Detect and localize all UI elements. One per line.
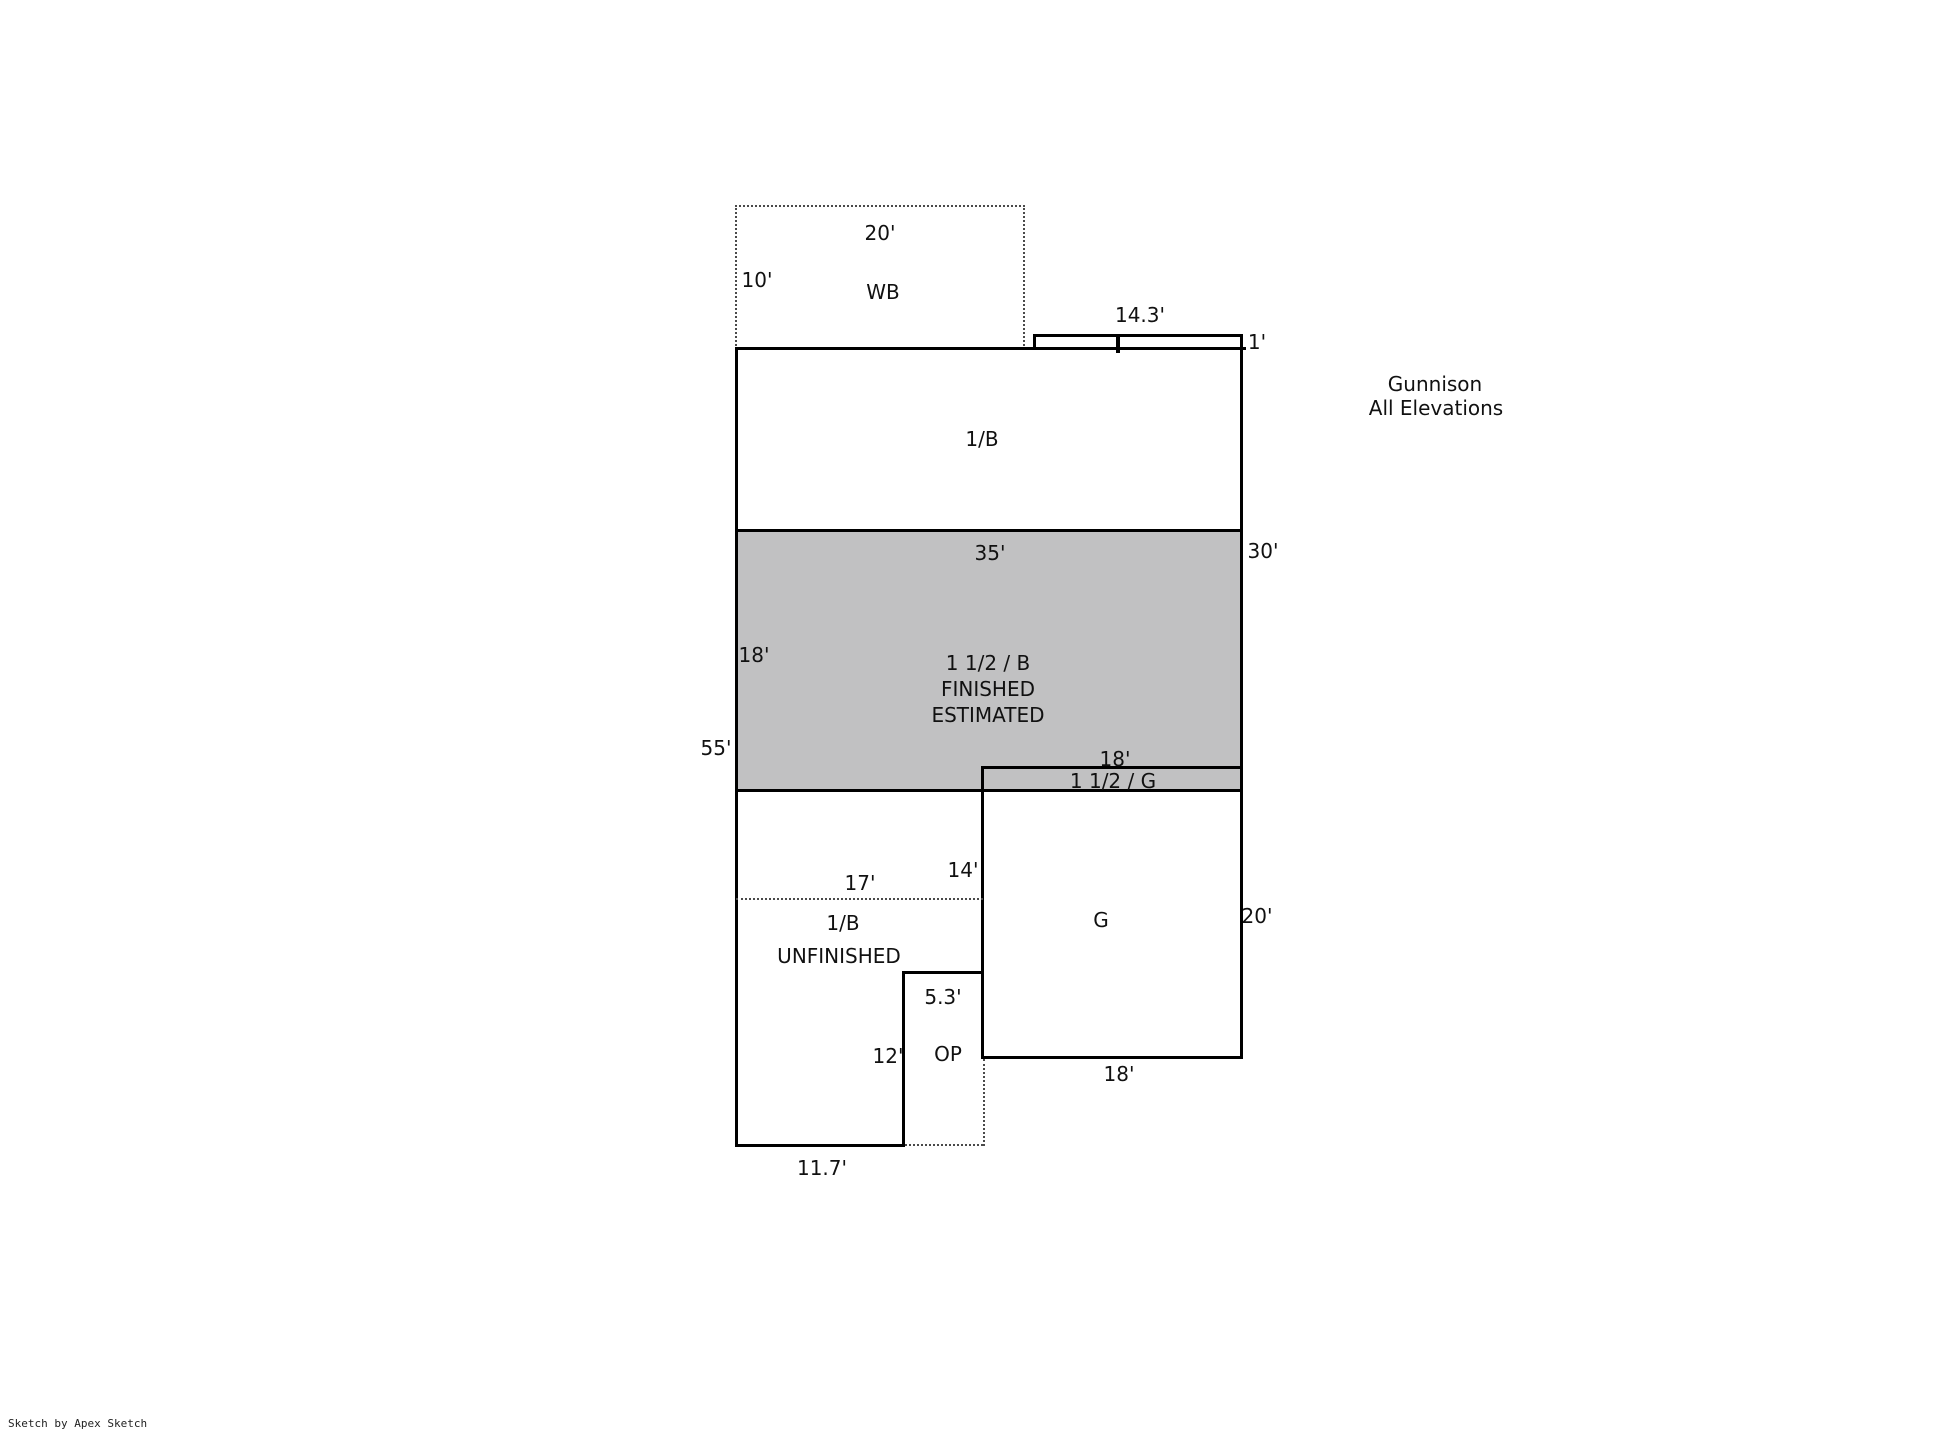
garage-width-dim: 18' [1104,1063,1135,1085]
garage-height-dim: 20' [1242,905,1273,927]
upper-basement-width-dim: 35' [975,542,1006,564]
finished-area-note: ESTIMATED [931,704,1044,726]
bump-width-dim: 14.3' [1115,304,1165,326]
overall-height-dim: 55' [701,737,732,759]
bottom-width-dim: 11.7' [797,1157,847,1179]
unfinished-right-dim: 14' [948,859,979,881]
notch-width-dim: 5.3' [924,986,961,1008]
finished-area-status: FINISHED [941,678,1035,700]
bump-height-dim: 1' [1248,331,1266,353]
finished-area-name: 1 1/2 / B [946,652,1030,674]
open-porch-label: OP [934,1043,962,1065]
sketch-credit: Sketch by Apex Sketch [8,1417,147,1430]
bump-tick [1116,336,1120,353]
plan-title: Gunnison [1388,373,1482,395]
finished-area-top-line [735,529,1243,532]
main-outline-top [735,347,1246,350]
garage-strip-area-label: 1 1/2 / G [1070,770,1156,792]
wb-height-dim: 10' [742,269,773,291]
unfinished-status-label: UNFINISHED [777,945,901,967]
upper-basement-height-dim: 30' [1248,540,1279,562]
finished-area-left-dim: 18' [739,644,770,666]
upper-basement-area-label: 1/B [965,428,998,450]
finished-area-bottom-line [735,789,1243,792]
notch-height-dim: 12' [873,1045,904,1067]
unfinished-interior-dim: 17' [845,872,876,894]
garage-strip-width-dim: 18' [1100,748,1131,770]
main-outline-left [735,347,738,1147]
garage-left-line [981,766,984,1059]
open-porch-dotted-right [983,1059,985,1146]
unfinished-dotted-divider [736,898,983,900]
plan-subtitle: All Elevations [1369,397,1503,419]
notch-top-line [902,971,984,974]
garage-bottom-line [981,1056,1243,1059]
unfinished-area-label: 1/B [826,912,859,934]
wb-width-dim: 20' [865,222,896,244]
floor-plan-canvas: 20' 10' WB 14.3' 1' 1/B 35' 30' 18' 1 1/… [0,0,1958,1436]
main-outline-right [1240,334,1243,1059]
garage-area-label: G [1093,909,1109,931]
open-porch-dotted-bottom [905,1144,983,1146]
wb-area-label: WB [866,281,900,303]
bump-outline-top [1033,334,1243,337]
bump-outline-left [1033,334,1036,350]
bottom-outline-line [735,1144,905,1147]
